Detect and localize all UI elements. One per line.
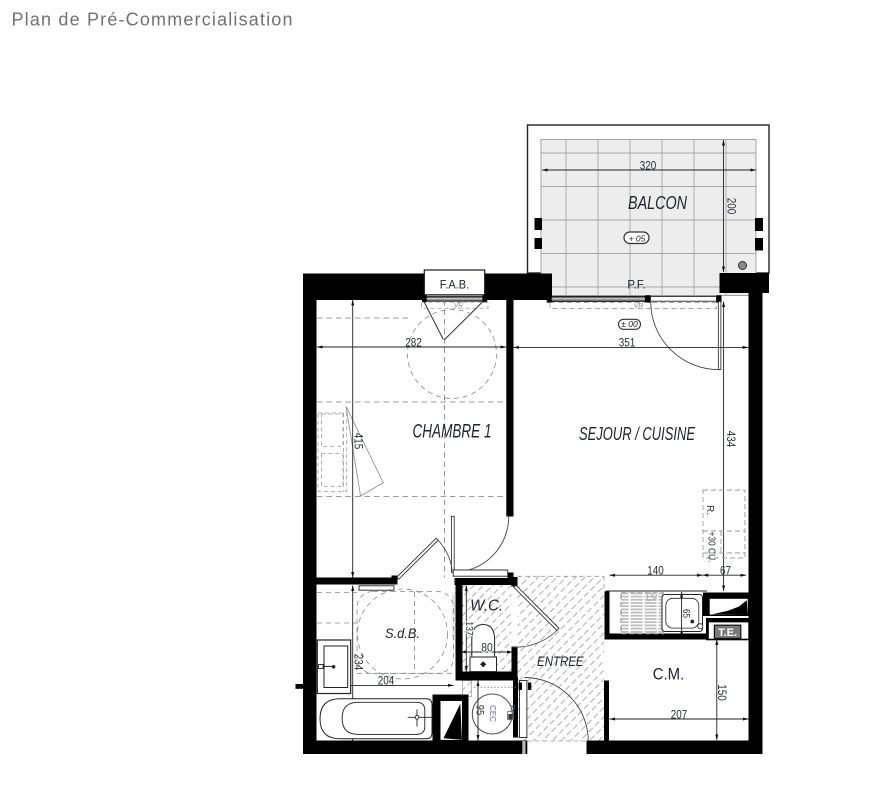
svg-text:282: 282 bbox=[405, 335, 422, 349]
svg-text:415: 415 bbox=[352, 433, 366, 450]
svg-text:200: 200 bbox=[725, 198, 739, 215]
svg-text:SEJOUR / CUISINE: SEJOUR / CUISINE bbox=[579, 424, 696, 444]
svg-text:65: 65 bbox=[680, 609, 691, 618]
svg-text:VR: VR bbox=[454, 303, 464, 310]
svg-text:VR: VR bbox=[634, 303, 644, 310]
svg-text:BALCON: BALCON bbox=[628, 193, 688, 213]
svg-text:T.E.: T.E. bbox=[718, 627, 737, 639]
svg-text:150: 150 bbox=[715, 684, 729, 701]
svg-text:234: 234 bbox=[352, 654, 366, 671]
svg-text:434: 434 bbox=[724, 431, 738, 448]
svg-text:R.: R. bbox=[704, 505, 715, 515]
svg-text:320: 320 bbox=[640, 158, 657, 172]
svg-text:Plan de Pré-Commercialisation: Plan de Pré-Commercialisation bbox=[12, 10, 293, 30]
svg-text:CEC: CEC bbox=[488, 705, 497, 722]
svg-text:W.C.: W.C. bbox=[470, 598, 503, 615]
svg-text:S.d.B.: S.d.B. bbox=[385, 625, 420, 641]
svg-text:140: 140 bbox=[647, 564, 664, 578]
svg-text:CHAMBRE 1: CHAMBRE 1 bbox=[413, 422, 492, 443]
svg-text:137: 137 bbox=[463, 621, 475, 636]
svg-text:207: 207 bbox=[671, 707, 688, 721]
svg-text:P.F.: P.F. bbox=[627, 280, 645, 292]
svg-text:LV: LV bbox=[646, 593, 658, 604]
svg-text:± 00: ± 00 bbox=[621, 319, 638, 329]
svg-text:F.A.B.: F.A.B. bbox=[440, 278, 470, 292]
svg-text:+ 05: + 05 bbox=[629, 234, 646, 244]
svg-text:80: 80 bbox=[481, 642, 493, 654]
svg-text:95: 95 bbox=[474, 705, 486, 716]
svg-text:ENTREE: ENTREE bbox=[537, 654, 584, 669]
svg-text:204: 204 bbox=[378, 674, 395, 688]
svg-text:+30 CU.: +30 CU. bbox=[706, 532, 717, 563]
svg-text:351: 351 bbox=[619, 336, 636, 350]
svg-text:67: 67 bbox=[720, 564, 731, 578]
svg-text:C.M.: C.M. bbox=[653, 665, 685, 684]
svg-text:Cloisonnage en Carreaux: Cloisonnage en Carreaux bbox=[451, 592, 456, 642]
